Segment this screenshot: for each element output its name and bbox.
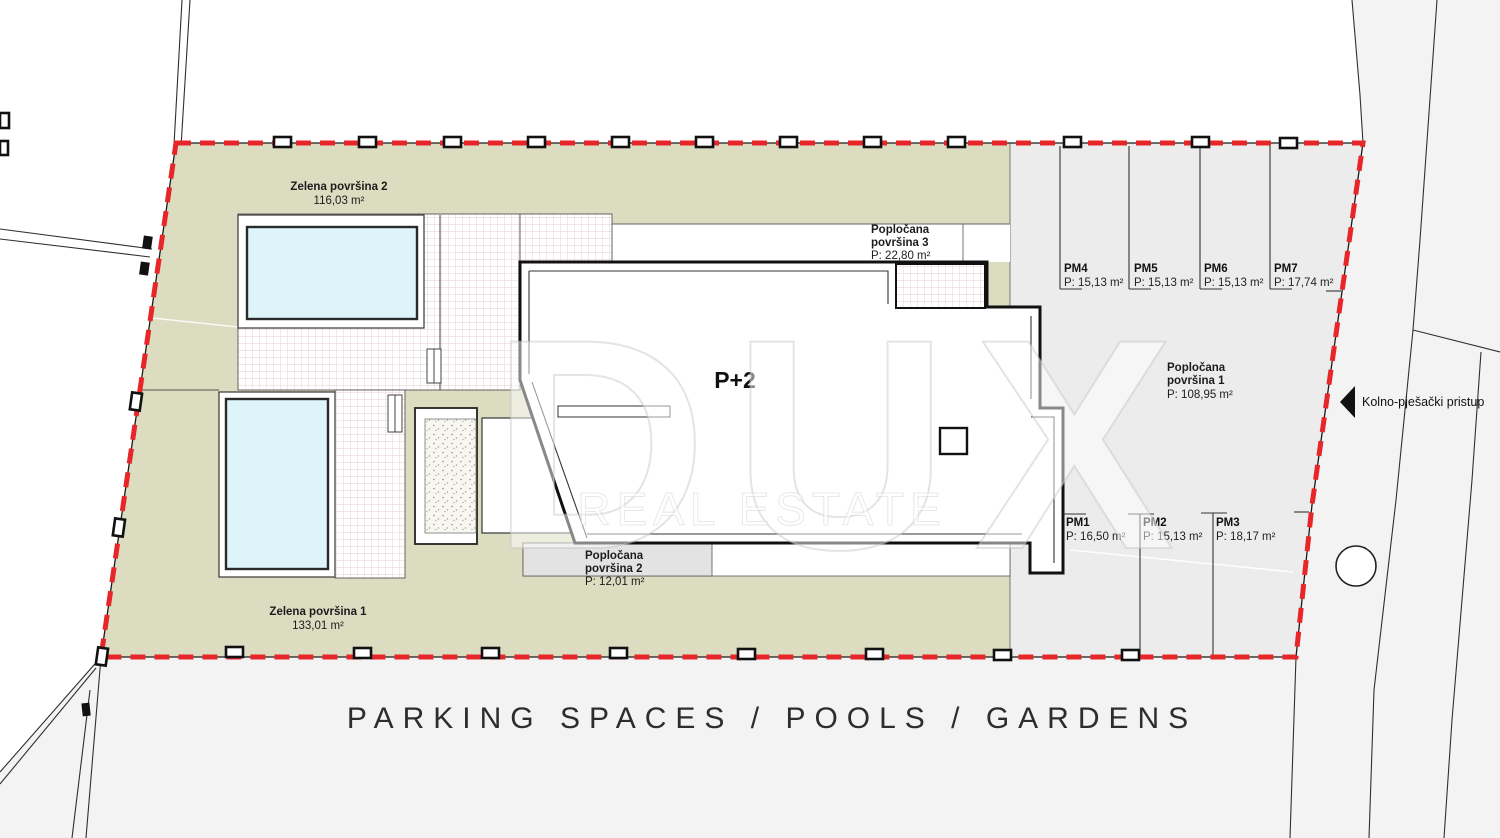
pool-ladder-upper-b: [434, 349, 441, 383]
sand-area: [425, 419, 476, 533]
paved-band-top: [612, 224, 1010, 262]
paved-3-area: P: 22,80 m²: [871, 250, 931, 262]
watermark: DUX REAL ESTATE: [491, 276, 1199, 612]
paved-terrace-upper-right: [520, 214, 612, 262]
parking-area-pm6: P: 15,13 m²: [1204, 277, 1264, 289]
green-area-1-name: Zelena površina 1: [269, 606, 367, 618]
green-area-1-area: 133,01 m²: [292, 620, 344, 632]
pool-ladder-upper-a: [427, 349, 434, 383]
pool-ladder-lower-a: [388, 395, 395, 432]
paved-3-line1: Popločana: [871, 224, 930, 236]
parking-label-pm5: PM5: [1134, 263, 1158, 275]
watermark-subtitle-text: REAL ESTATE: [577, 483, 946, 535]
parking-label-pm7: PM7: [1274, 263, 1298, 275]
paved-area-3-label: Popločana površina 3 P: 22,80 m²: [871, 224, 931, 262]
site-plan-page: Zelena površina 2 116,03 m² Zelena površ…: [0, 0, 1500, 838]
parking-area-pm3: P: 18,17 m²: [1216, 531, 1276, 543]
pool-upper: [247, 227, 417, 319]
green-area-2-area: 116,03 m²: [314, 195, 365, 207]
paved-3-line2: površina 3: [871, 237, 929, 249]
parking-label-pm3: PM3: [1216, 517, 1240, 529]
page-title: PARKING SPACES / POOLS / GARDENS: [347, 702, 1197, 735]
manhole-circle: [1336, 546, 1376, 586]
site-plan-drawing: Zelena površina 2 116,03 m² Zelena površ…: [0, 0, 1500, 838]
access-label: Kolno-pješački pristup: [1362, 395, 1484, 409]
parking-label-pm6: PM6: [1204, 263, 1228, 275]
pool-ladder-lower-b: [395, 395, 402, 432]
green-area-2-name: Zelena površina 2: [290, 181, 387, 193]
watermark-logo-text: DUX: [491, 276, 1199, 612]
parking-label-pm4: PM4: [1064, 263, 1088, 275]
pool-lower: [226, 399, 328, 569]
parking-area-pm7: P: 17,74 m²: [1274, 277, 1334, 289]
